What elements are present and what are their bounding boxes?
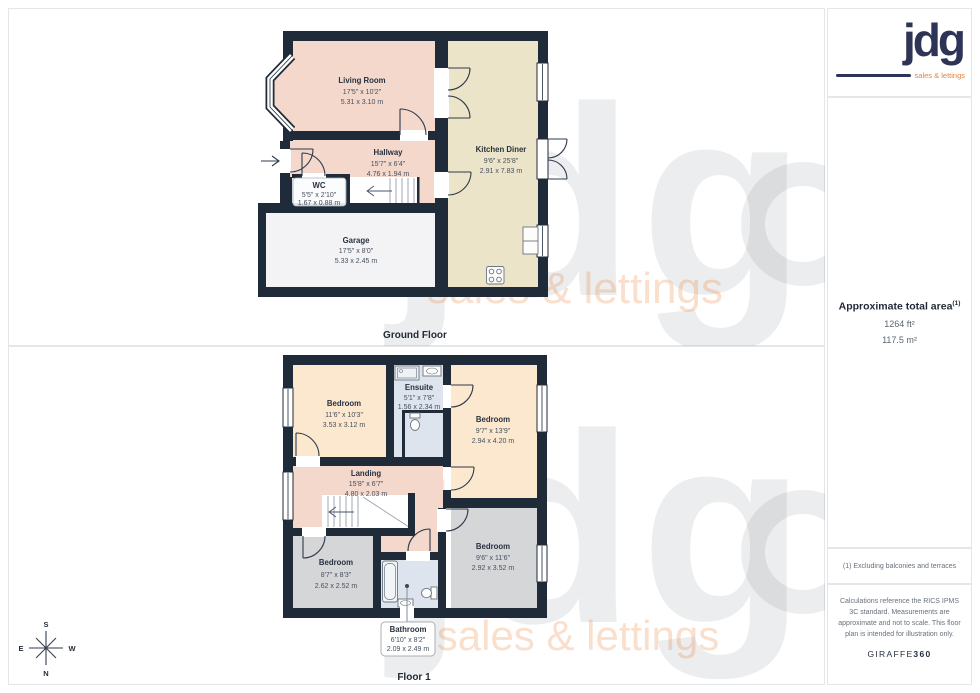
bathroom-dims-ft: 6'10" x 8'2" bbox=[391, 637, 426, 644]
watermark-tagline-text: sales & lettings bbox=[437, 612, 719, 659]
hallway-dims-ft: 15'7" x 6'4" bbox=[371, 161, 406, 168]
ensuite-label: Ensuite bbox=[405, 383, 434, 392]
bedroom-2-dims-ft: 9'7" x 13'9" bbox=[476, 428, 511, 435]
wc-dims-ft: 5'5" x 2'10" bbox=[302, 192, 337, 199]
stairs-area-ground bbox=[348, 177, 418, 204]
bedroom-1-area bbox=[293, 365, 386, 457]
area-title-text: Approximate total area bbox=[839, 301, 953, 313]
living-room-dims-ft: 17'5" x 10'2" bbox=[343, 89, 382, 96]
bedroom-4-dims-ft: 9'6" x 11'6" bbox=[476, 555, 510, 562]
area-metric: 117.5 m² bbox=[882, 335, 917, 345]
area-imperial: 1264 ft² bbox=[884, 319, 915, 329]
bedroom-4-dims-m: 2.92 x 3.52 m bbox=[472, 565, 515, 572]
bedroom-3-label: Bedroom bbox=[319, 558, 353, 567]
floor-1-plan: jdg sales & lettings bbox=[8, 346, 825, 685]
compass-icon: S N E W bbox=[8, 610, 88, 690]
compass-north-label: N bbox=[43, 669, 48, 678]
living-room-dims-m: 5.31 x 3.10 m bbox=[341, 99, 384, 106]
ensuite-sink-icon bbox=[423, 366, 441, 376]
living-room-label: Living Room bbox=[338, 76, 385, 85]
bedroom-2-label: Bedroom bbox=[476, 415, 510, 424]
bathroom-label: Bathroom bbox=[390, 625, 427, 634]
compass-west-label: W bbox=[68, 644, 76, 653]
bedroom-4-label: Bedroom bbox=[476, 542, 510, 551]
disclaimer-box: Calculations reference the RICS IPMS 3C … bbox=[827, 584, 972, 685]
giraffe360-name: GIRAFFE bbox=[867, 649, 913, 659]
total-area-box: Approximate total area(1) 1264 ft² 117.5… bbox=[827, 97, 972, 548]
logo-brand: jdg bbox=[903, 17, 963, 63]
landing-dims-m: 4.80 x 2.03 m bbox=[345, 491, 388, 498]
ground-floor-title: Ground Floor bbox=[383, 330, 447, 341]
ensuite-toilet-icon bbox=[410, 413, 420, 418]
disclaimer-text: Calculations reference the RICS IPMS 3C … bbox=[838, 597, 961, 640]
giraffe360-brand: GIRAFFE360 bbox=[838, 649, 961, 659]
bedroom-1-label: Bedroom bbox=[327, 399, 361, 408]
giraffe360-suffix: 360 bbox=[913, 649, 931, 659]
hob-icon bbox=[487, 267, 505, 285]
ensuite-dims-ft: 5'1" x 7'8" bbox=[404, 395, 435, 402]
garage-dims-ft: 17'5" x 8'0" bbox=[339, 248, 374, 255]
bedroom-1-dims-m: 3.53 x 3.12 m bbox=[323, 422, 366, 429]
stairs-area-floor1 bbox=[322, 495, 408, 528]
garage-dims-m: 5.33 x 2.45 m bbox=[335, 258, 378, 265]
area-title: Approximate total area(1) bbox=[839, 300, 961, 313]
bedroom-3-dims-ft: 8'7" x 8'3" bbox=[321, 572, 352, 579]
wc-label: WC bbox=[313, 181, 326, 190]
callout-anchor-dot bbox=[405, 584, 409, 588]
kitchen-diner-dims-m: 2.91 x 7.83 m bbox=[480, 168, 523, 175]
logo-underline bbox=[836, 74, 911, 78]
kitchen-diner-label: Kitchen Diner bbox=[476, 145, 527, 154]
area-title-sup: (1) bbox=[952, 300, 960, 307]
floorplan-page: jdg sales & lettings bbox=[0, 0, 980, 693]
kitchen-french-door-opening bbox=[537, 139, 548, 179]
ground-floor-plan: jdg sales & lettings bbox=[8, 8, 825, 346]
logo-tagline: sales & lettings bbox=[915, 71, 965, 80]
logo-box: jdg sales & lettings bbox=[827, 8, 972, 97]
ensuite-dims-m: 1.56 x 2.34 m bbox=[398, 404, 441, 411]
living-room-area bbox=[293, 41, 438, 131]
bathroom-dims-m: 2.09 x 2.49 m bbox=[387, 646, 430, 653]
floor-1-title: Floor 1 bbox=[397, 672, 431, 683]
landing-label: Landing bbox=[351, 469, 382, 478]
compass-east-label: E bbox=[18, 644, 23, 653]
entrance-arrow-icon bbox=[261, 156, 279, 166]
wc-dims-m: 1.67 x 0.88 m bbox=[298, 200, 341, 207]
hallway-label: Hallway bbox=[373, 148, 403, 157]
footnote-text: (1) Excluding balconies and terraces bbox=[843, 563, 956, 570]
compass-south-label: S bbox=[43, 620, 48, 629]
footnote-box: (1) Excluding balconies and terraces bbox=[827, 548, 972, 584]
landing-dims-ft: 15'8" x 6'7" bbox=[349, 481, 384, 488]
bedroom-2-dims-m: 2.94 x 4.20 m bbox=[472, 438, 515, 445]
bedroom-3-dims-m: 2.62 x 2.52 m bbox=[315, 583, 358, 590]
garage-label: Garage bbox=[343, 236, 371, 245]
hallway-dims-m: 4.76 x 1.94 m bbox=[367, 171, 410, 178]
bedroom-1-dims-ft: 11'6" x 10'3" bbox=[325, 412, 363, 419]
kitchen-counter bbox=[523, 227, 538, 254]
kitchen-diner-dims-ft: 9'6" x 25'8" bbox=[484, 158, 519, 165]
